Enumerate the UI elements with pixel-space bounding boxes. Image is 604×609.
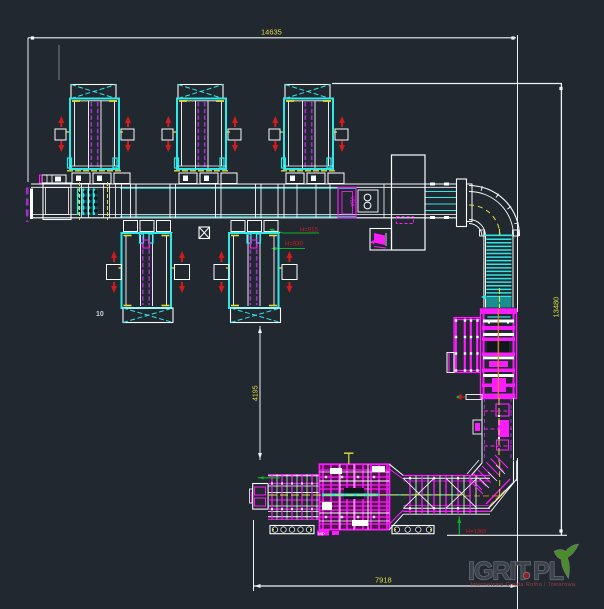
- svg-text:13480: 13480: [552, 297, 561, 318]
- svg-text:14635: 14635: [261, 28, 282, 37]
- svg-text:7918: 7918: [375, 576, 392, 585]
- svg-text:Internetowa Giełda Rolna i Tow: Internetowa Giełda Rolna i Towarowa: [471, 582, 576, 588]
- svg-text:4195: 4195: [253, 385, 260, 401]
- svg-text:VBA: VBA: [349, 197, 355, 208]
- svg-text:H=1365: H=1365: [466, 529, 486, 535]
- svg-text:10: 10: [96, 311, 104, 318]
- svg-text:H=930: H=930: [285, 242, 304, 248]
- svg-text:MP: MP: [318, 532, 325, 537]
